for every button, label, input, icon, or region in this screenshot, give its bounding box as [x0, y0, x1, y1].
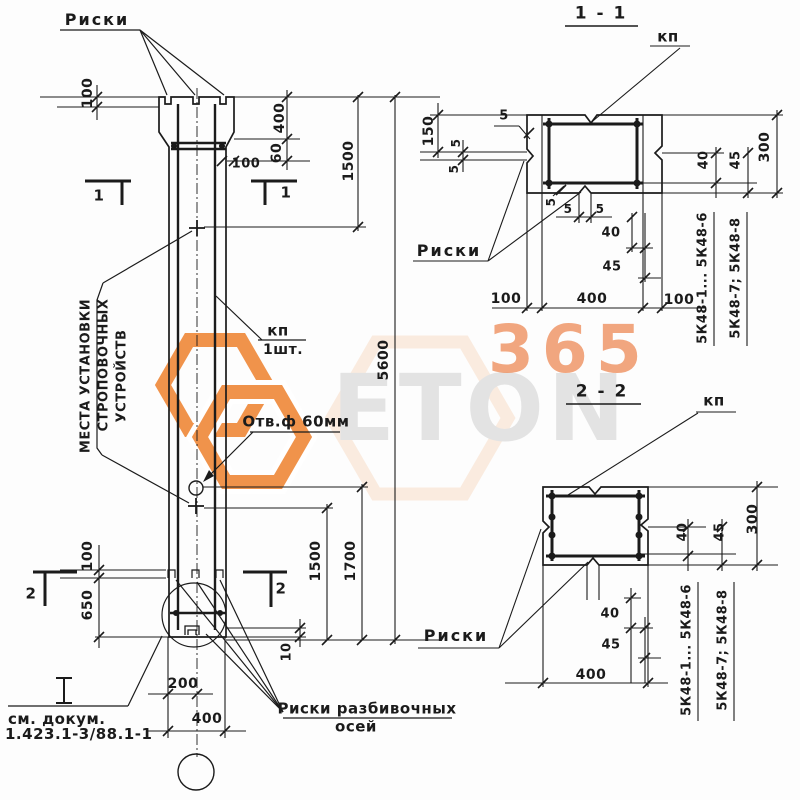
dim-5: 5: [499, 110, 509, 123]
cut-label-1-right: 1: [281, 186, 292, 201]
dim-100-bottomleft: 100: [81, 541, 95, 572]
dim-650: 650: [81, 590, 95, 621]
dim-300-s22: 300: [746, 504, 760, 535]
label-riski-s11: Риски: [417, 243, 482, 259]
label-see-doc-2: 1.423.1-3/88.1-1: [5, 727, 152, 742]
dim-5600-total: 5600: [377, 340, 391, 381]
rebar-cage: [543, 118, 643, 189]
dim-1700: 1700: [344, 541, 358, 582]
cut-label-1-left: 1: [94, 189, 105, 204]
dim-400-bottom: 400: [192, 712, 223, 726]
dim-1500-bottom: 1500: [309, 541, 323, 582]
strop-cross-icon: [188, 220, 205, 514]
dim-400-s11: 400: [577, 292, 608, 306]
rebar-cage: [546, 490, 645, 561]
dim-150: 150: [422, 116, 436, 147]
label-riski-top: Риски: [65, 12, 130, 28]
mark-series-b-s11: 5К48-7; 5К48-8: [730, 217, 743, 338]
datum-symbol-icon: [56, 678, 72, 703]
note-line-1: МЕСТА УСТАНОВКИ: [80, 299, 93, 453]
section-2-2-title: 2 - 2: [576, 384, 629, 401]
dim-100-s11-left: 100: [491, 292, 522, 306]
dim-40-s22: 40: [677, 522, 690, 541]
dim-5: 5: [564, 203, 573, 215]
dim-45-s22: 45: [714, 522, 727, 541]
dim-400-s22: 400: [576, 668, 607, 682]
dim-100-taper: 100: [232, 158, 261, 171]
cut-label-2-left: 2: [26, 587, 37, 602]
watermark-digits: 365: [488, 311, 650, 388]
dim-100-s11-right: 100: [664, 293, 695, 307]
dim-5: 5: [448, 165, 460, 174]
dim-400-head: 400: [273, 103, 287, 134]
mark-series-a-s22: 5К48-1... 5К48-6: [681, 584, 694, 716]
label-kp: кп: [267, 324, 289, 339]
dim-45-below-s22: 45: [601, 639, 620, 652]
dim-5: 5: [450, 139, 462, 148]
hole-circle: [189, 481, 203, 495]
dim-1500-top: 1500: [342, 141, 356, 182]
drawing-sheet: ETON 365: [0, 0, 800, 800]
label-riski-s22: Риски: [424, 628, 489, 644]
dim-40-below-s11: 40: [601, 227, 620, 240]
label-axes-risks-1: Риски разбивочных: [277, 702, 456, 717]
dim-45-below-s11: 45: [602, 261, 621, 274]
dim-300-s11: 300: [758, 132, 772, 163]
note-line-2: СТРОПОВОЧНЫХ: [98, 299, 111, 432]
dim-100-topleft: 100: [81, 78, 95, 109]
cut-label-2-right: 2: [276, 582, 287, 597]
axis-bubble: [178, 754, 214, 790]
section-1-1-title: 1 - 1: [575, 6, 628, 23]
watermark: ETON 365: [163, 311, 650, 494]
dim-5: 5: [545, 198, 557, 207]
label-kp-qty: 1шт.: [263, 343, 303, 357]
dim-45-s11: 45: [730, 150, 743, 169]
dim-40-below-s22: 40: [600, 608, 619, 621]
mark-series-a-s11: 5К48-1... 5К48-6: [697, 212, 710, 344]
dim-10: 10: [281, 642, 294, 661]
dim-5: 5: [596, 203, 605, 215]
dim-40-s11: 40: [698, 150, 711, 169]
mark-series-b-s22: 5К48-7; 5К48-8: [717, 589, 730, 710]
label-hole: Отв.ф 60мм: [242, 415, 349, 430]
note-line-3: УСТРОЙСТВ: [116, 330, 129, 423]
rebar-dots: [546, 121, 641, 187]
dim-60-taper: 60: [270, 143, 284, 163]
rebar-dots: [549, 493, 643, 560]
dim-200: 200: [168, 677, 199, 691]
label-axes-risks-2: осей: [335, 720, 377, 735]
label-kp-s22: кп: [703, 394, 725, 409]
label-kp-s11: кп: [657, 30, 679, 45]
